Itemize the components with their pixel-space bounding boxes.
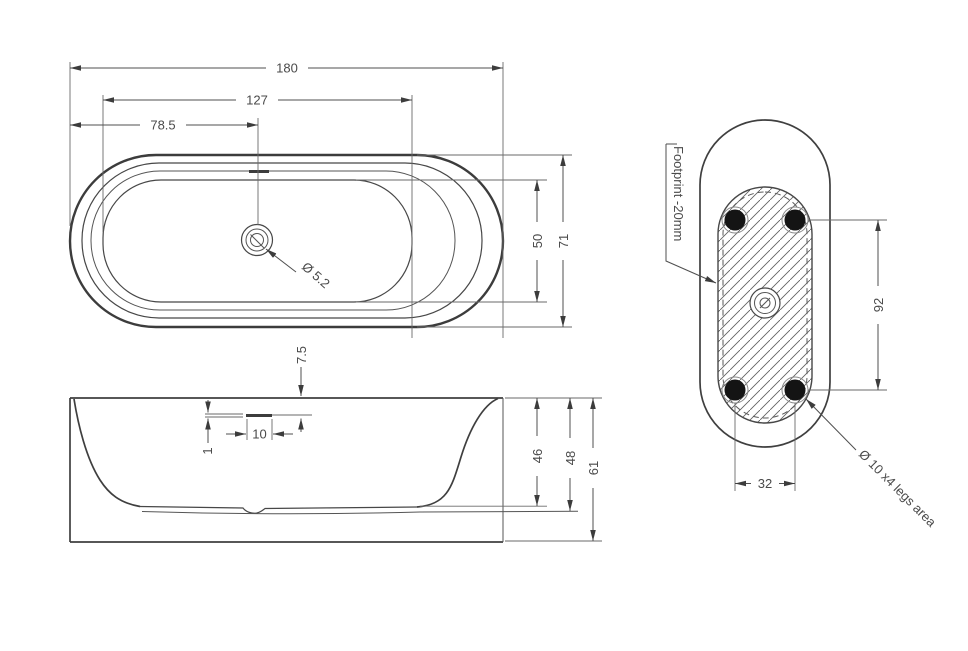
dim-slot-length: 10 <box>252 427 266 442</box>
dim-legs-pitch-short: 32 <box>758 476 772 491</box>
dim-overall-height: 61 <box>586 461 601 475</box>
dim-legs-pitch-long: 92 <box>871 298 886 312</box>
dim-inner-depth: 46 <box>530 449 545 463</box>
dim-rim-to-slot: 7.5 <box>294 346 309 364</box>
leg-circle <box>725 210 746 231</box>
dim-shell-depth: 48 <box>563 451 578 465</box>
dim-overall-length: 180 <box>276 61 298 76</box>
dim-overall-width: 71 <box>556 234 571 248</box>
dim-basin-length: 127 <box>246 93 268 108</box>
technical-drawing: Ø 5.2 180 127 78.5 50 <box>0 0 968 651</box>
leg-circle <box>725 380 746 401</box>
drain-bottom-icon <box>750 288 780 318</box>
leg-circle <box>785 380 806 401</box>
dim-slot-thickness: 1 <box>200 447 215 454</box>
footprint-label: Footprint -20mm <box>671 146 686 241</box>
leg-circle <box>785 210 806 231</box>
dim-drain-offset: 78.5 <box>150 118 175 133</box>
dim-basin-width: 50 <box>530 234 545 248</box>
